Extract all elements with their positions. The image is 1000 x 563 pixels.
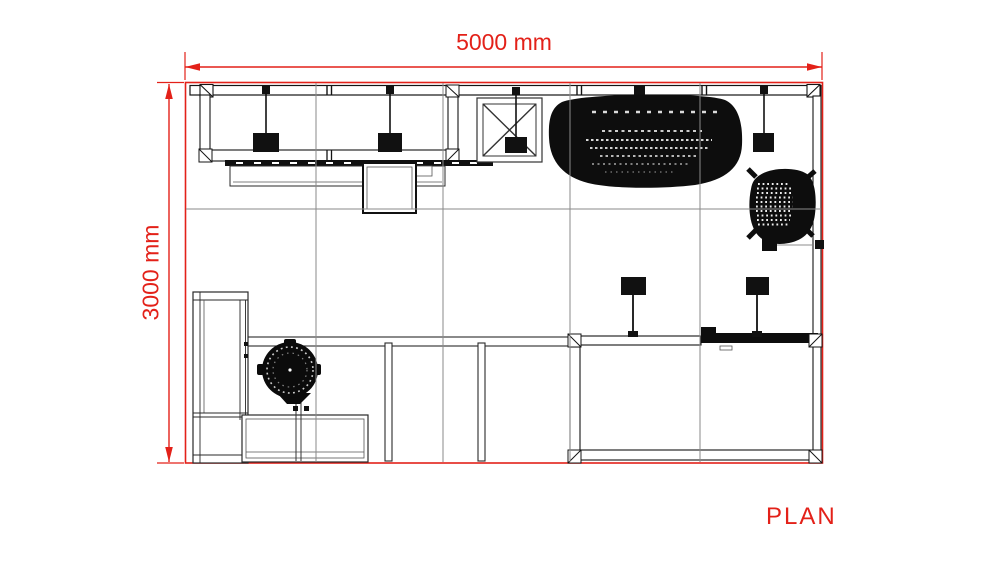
partition-fin <box>385 343 392 461</box>
floor-plan-sheet: 5000 mm 3000 mm PLAN <box>0 0 1000 563</box>
square-table <box>363 163 416 213</box>
pendant-light <box>253 86 279 152</box>
spot-lights <box>621 277 769 337</box>
reception-desk <box>242 415 368 462</box>
pendant-light <box>378 86 402 152</box>
wardrobe-cabinet <box>193 292 248 463</box>
width-dimension-label: 5000 mm <box>444 29 564 56</box>
partition-fins <box>385 343 485 461</box>
spot-light <box>746 277 769 337</box>
pendant-light <box>753 86 774 152</box>
storage-room <box>568 327 822 463</box>
height-dimension-label: 3000 mm <box>138 213 165 333</box>
display-counter <box>225 160 493 186</box>
plan-title: PLAN <box>766 503 837 531</box>
spot-light <box>621 277 646 337</box>
right-wall <box>777 96 821 462</box>
dimension-top <box>185 52 822 80</box>
back-wall-display <box>199 85 459 162</box>
organic-canopy <box>549 86 742 188</box>
back-wall-panels <box>190 85 821 98</box>
partition-fin <box>478 343 485 461</box>
